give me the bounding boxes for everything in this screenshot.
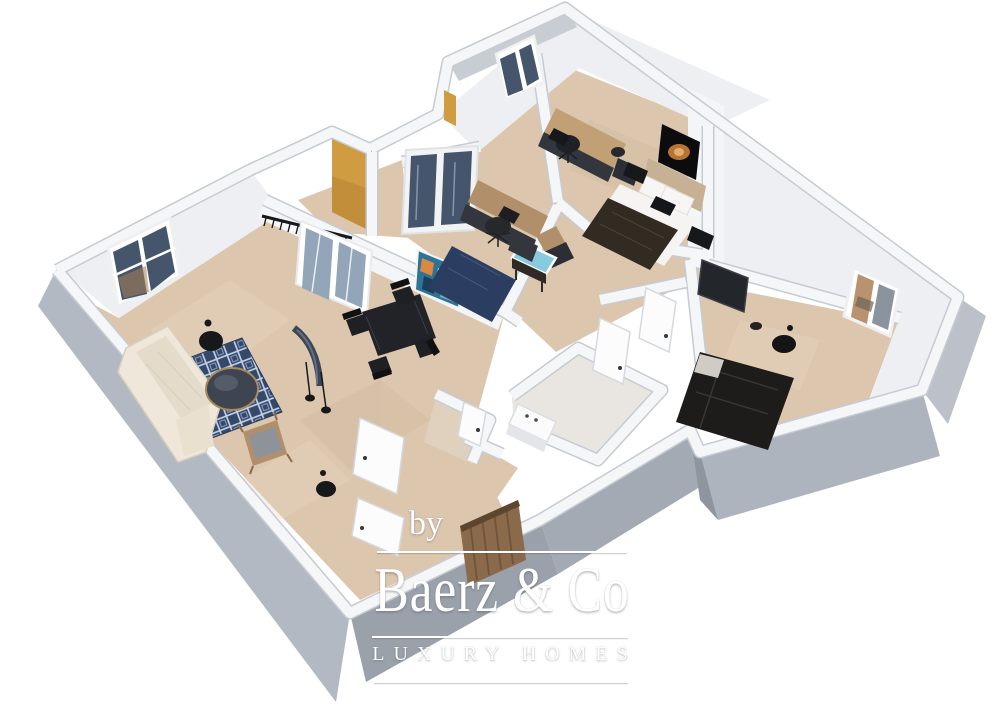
bedroom-2-door: [639, 288, 676, 352]
watermark-prefix: by: [377, 505, 659, 543]
balcony-orange-sliver: [444, 90, 456, 126]
watermark-brand: Baerz & Co: [364, 554, 640, 627]
coffee-table: [206, 368, 258, 410]
watermark-divider-3: [374, 681, 628, 683]
watermark-divider-1: [377, 551, 627, 553]
bedroom-1-stool: [611, 147, 625, 157]
floor-plan-render: by Baerz & Co LUXURY HOMES: [0, 0, 1000, 710]
watermark-divider-2: [372, 636, 628, 638]
bedroom-2-stool: [750, 322, 762, 330]
watermark-tagline: LUXURY HOMES: [362, 643, 638, 666]
